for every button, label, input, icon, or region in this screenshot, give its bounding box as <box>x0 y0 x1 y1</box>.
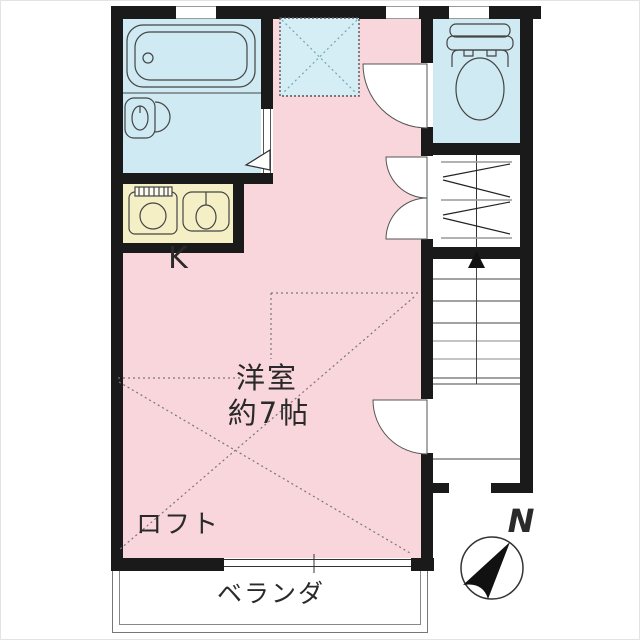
room-name-label: 洋室 <box>197 363 337 395</box>
sink-icon <box>183 192 229 231</box>
loft-ladder-area-icon <box>280 18 359 96</box>
door-swing-icon <box>363 64 427 128</box>
stove-icon <box>129 187 177 234</box>
floorplan: K 洋室 約7帖 ロフト ベランダ N <box>0 0 640 640</box>
bathtub-icon <box>127 25 255 87</box>
door-swing-icon <box>246 109 271 173</box>
compass-icon <box>461 537 523 599</box>
door-swing-icon <box>373 400 427 454</box>
loft-label: ロフト <box>117 511 239 540</box>
door-swing-icon <box>386 157 427 198</box>
floorplan-drawing <box>1 1 640 640</box>
stairs-up-arrow-icon <box>468 251 485 268</box>
toilet-icon <box>447 24 513 120</box>
veranda-window-lines <box>224 554 411 573</box>
kitchen-label: K <box>153 242 203 275</box>
room-size-label: 約7帖 <box>187 398 351 430</box>
door-swing-icon <box>386 198 427 239</box>
closet-hatch-icon <box>441 155 512 247</box>
compass-north-label: N <box>501 504 541 539</box>
stairs-icon <box>433 267 520 459</box>
washbasin-icon <box>125 98 170 138</box>
veranda-label: ベランダ <box>171 580 371 608</box>
